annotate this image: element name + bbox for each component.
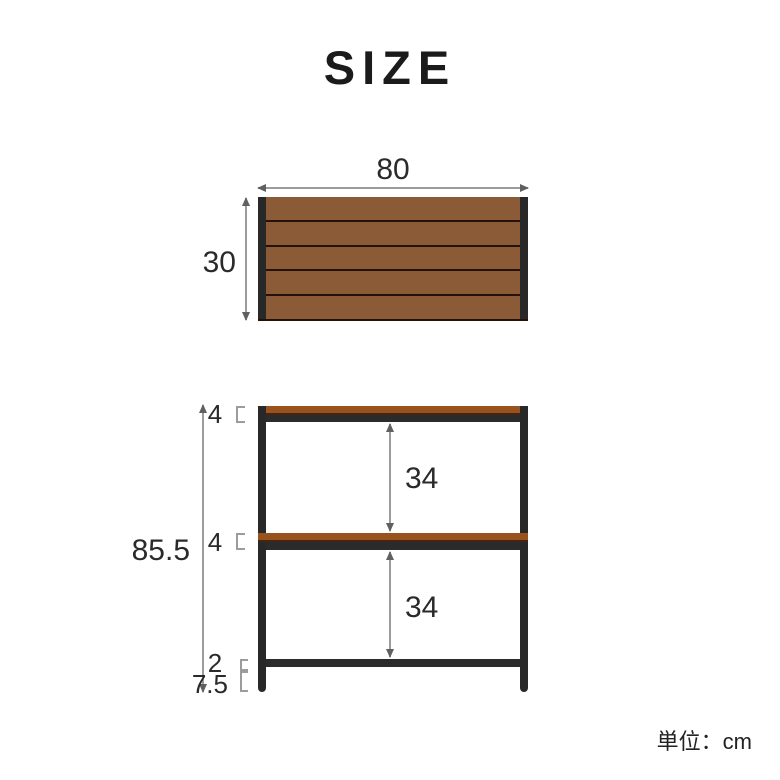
shelf-board-top-view xyxy=(258,197,528,321)
upper-gap-label: 34 xyxy=(405,461,438,497)
depth-dimension-label: 30 xyxy=(182,245,236,281)
wood-plank xyxy=(266,245,520,270)
bottom-bar-bracket-icon xyxy=(240,659,248,671)
bottom-crossbar xyxy=(261,659,525,667)
lower-gap-arrow-icon xyxy=(389,552,391,657)
bottom-clearance-bracket-icon xyxy=(240,671,248,692)
left-frame-bar xyxy=(258,197,266,319)
upper-gap-arrow-icon xyxy=(389,424,391,531)
wood-plank xyxy=(266,269,520,294)
middle-shelf-thickness-label: 4 xyxy=(202,527,228,558)
top-shelf-thickness-bracket-icon xyxy=(236,406,245,423)
wood-plank xyxy=(266,294,520,319)
bottom-clearance-label: 7.5 xyxy=(186,669,228,700)
width-dimension-arrow-icon xyxy=(258,187,528,189)
top-shelf-thickness-label: 4 xyxy=(202,399,228,430)
top-shelf-wood xyxy=(266,406,520,415)
top-shelf-frame xyxy=(266,415,520,422)
wood-plank xyxy=(266,220,520,245)
depth-dimension-arrow-icon xyxy=(245,198,247,320)
right-frame-bar xyxy=(520,197,528,319)
lower-gap-label: 34 xyxy=(405,590,438,626)
left-leg xyxy=(258,406,266,692)
middle-shelf-thickness-bracket-icon xyxy=(236,533,245,550)
wood-planks xyxy=(266,197,520,319)
right-leg xyxy=(520,406,528,692)
unit-label: 単位：cm xyxy=(657,724,752,756)
width-dimension-label: 80 xyxy=(258,152,528,188)
page-title: SIZE xyxy=(0,40,780,95)
size-diagram: SIZE 80 30 85.5 4 xyxy=(0,0,780,780)
total-height-label: 85.5 xyxy=(118,533,190,569)
middle-shelf-frame xyxy=(266,542,520,550)
middle-shelf-wood xyxy=(258,533,528,542)
wood-plank xyxy=(266,197,520,220)
